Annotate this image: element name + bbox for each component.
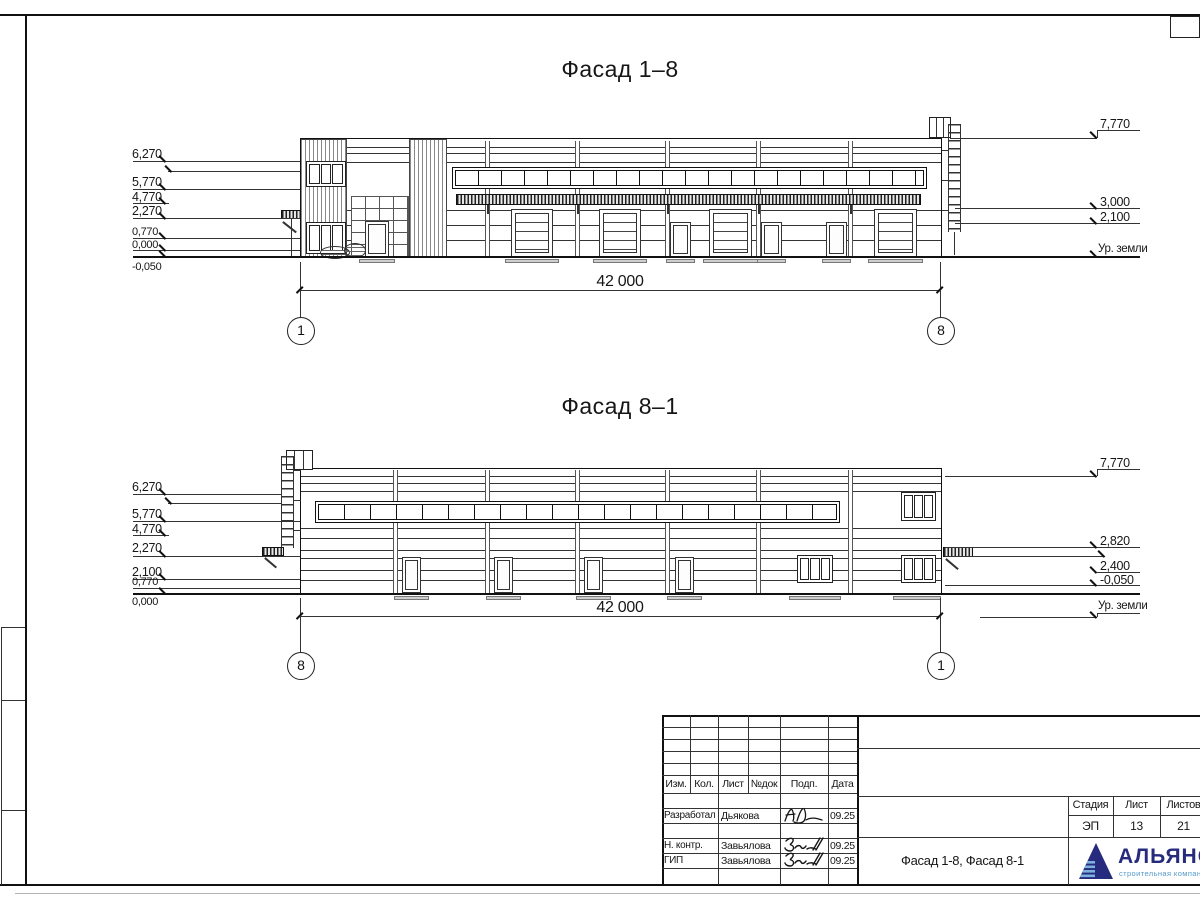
drawing-line [1, 627, 2, 885]
drawing-line [940, 290, 941, 317]
elevation-mark: 2,820 [1100, 534, 1130, 548]
row-name: Дьякова [721, 810, 759, 822]
drawing-line [785, 838, 823, 851]
stage-value: ЭП [1068, 819, 1113, 833]
col-data: Дата [828, 778, 857, 790]
drawing-line [265, 557, 277, 568]
drawing-line [955, 223, 1140, 224]
drawing-line [662, 823, 857, 824]
drawing-line [666, 259, 695, 263]
drawing-line [1097, 613, 1140, 614]
ground-line [278, 256, 988, 258]
drawing-line [168, 171, 300, 172]
drawing-line [133, 161, 300, 162]
drawing-line [893, 596, 941, 600]
drawing-line [857, 748, 1200, 749]
col-list: Лист [718, 778, 748, 790]
drawing-line [133, 494, 281, 495]
doc-title: Фасад 1-8, Фасад 8-1 [859, 853, 1066, 868]
elevation-mark: 2,270 [132, 204, 162, 218]
axis-bubble: 1 [287, 317, 315, 345]
drawing-line [300, 616, 301, 652]
drawing-line [988, 256, 1140, 258]
elevation-mark: 0,770 [132, 226, 158, 238]
drawing-line [300, 290, 301, 317]
drawing-line [294, 470, 301, 471]
signature [783, 851, 827, 869]
drawing-line [133, 218, 300, 219]
drawing-line [1090, 566, 1097, 573]
ground-level-label: Ур. земли [1098, 600, 1147, 612]
stage-label: Стадия [1068, 799, 1113, 811]
drawing-line [662, 751, 857, 752]
drawing-line [294, 530, 301, 531]
elevation-mark: 4,770 [132, 190, 162, 204]
drawing-line [942, 150, 948, 151]
building-outline [300, 138, 942, 258]
drawing-line [789, 596, 841, 600]
drawing-line [662, 868, 857, 869]
col-kol: Кол. [690, 778, 718, 790]
drawing-line [822, 259, 851, 263]
col-podp: Подп. [780, 778, 828, 790]
sheet-number: 13 [1113, 819, 1160, 833]
elevation-mark: 5,770 [132, 175, 162, 189]
drawing-line [505, 259, 559, 263]
building-outline [300, 468, 942, 595]
axis-bubble: 8 [287, 652, 315, 680]
dimension-text: 42 000 [520, 599, 720, 617]
drawing-line [662, 793, 857, 794]
drawing-line [1097, 469, 1140, 470]
elevation-mark: 2,270 [132, 541, 162, 555]
facade-top-title: Фасад 1–8 [420, 56, 820, 83]
drawing-line [486, 596, 521, 600]
drawing-line [283, 221, 297, 233]
drawing-line [1078, 875, 1095, 878]
corner-box [1170, 16, 1200, 38]
frame-top [0, 14, 1200, 16]
elevation-mark: 7,770 [1100, 456, 1130, 470]
ground-line [276, 593, 1012, 595]
company-tagline: строительная компания [1119, 869, 1200, 878]
drawing-line [294, 500, 301, 501]
sheets-label: Листов [1160, 799, 1200, 811]
drawing-line [133, 579, 300, 580]
row-date: 09.25 [830, 855, 855, 867]
drawing-line [757, 259, 786, 263]
drawing-line [394, 596, 429, 600]
col-izm: Изм. [662, 778, 690, 790]
drawing-line [133, 256, 278, 258]
drawing-line [946, 558, 959, 569]
frame-bottom [0, 884, 1200, 886]
drawing-line [942, 180, 948, 181]
signature [783, 804, 825, 824]
drawing-line [662, 853, 857, 854]
drawing-line [1078, 866, 1095, 869]
drawing-line [662, 808, 857, 809]
elevation-mark: 0,000 [132, 596, 158, 608]
col-ndok: №док [748, 778, 780, 790]
drawing-line [168, 503, 281, 504]
elevation-mark: 7,770 [1100, 117, 1130, 131]
elevation-mark: 2,400 [1100, 559, 1130, 573]
sheets-total: 21 [1160, 819, 1200, 833]
drawing-line [1, 627, 25, 628]
row-date: 09.25 [830, 810, 855, 822]
frame-left [25, 14, 27, 885]
drawing-line [593, 259, 647, 263]
drawing-line [945, 585, 1140, 586]
drawing-line [1, 810, 25, 811]
drawing-line [785, 808, 822, 823]
company-logo-icon [1078, 842, 1114, 880]
row-role: Разработал [664, 810, 715, 821]
row-name: Завьялова [721, 840, 771, 852]
drawing-sheet: Фасад 1–8 6,270 5,77 [0, 0, 1200, 900]
drawing-line [1012, 593, 1140, 595]
sheet-label: Лист [1113, 799, 1160, 811]
drawing-line [662, 838, 857, 839]
axis-bubble: 8 [927, 317, 955, 345]
drawing-line [703, 259, 758, 263]
drawing-line [940, 616, 941, 652]
drawing-line [1078, 870, 1095, 873]
drawing-line [1079, 843, 1113, 879]
elevation-mark: 6,270 [132, 480, 162, 494]
elevation-mark: 6,270 [132, 147, 162, 161]
row-role: Н. контр. [664, 840, 703, 851]
drawing-line [857, 837, 1200, 838]
facade-bottom-title: Фасад 8–1 [420, 393, 820, 420]
axis-bubble: 1 [927, 652, 955, 680]
drawing-line [662, 715, 1200, 717]
drawing-line [945, 556, 1105, 557]
drawing-line [718, 715, 719, 885]
drawing-line [943, 118, 944, 137]
drawing-line [980, 617, 1097, 618]
elevation-mark: -0,050 [132, 261, 161, 273]
elevation-mark: 5,770 [132, 507, 162, 521]
drawing-line [950, 138, 1097, 139]
drawing-line [133, 238, 300, 239]
drawing-line [828, 715, 829, 885]
drawing-line [662, 727, 857, 728]
drawing-line [942, 210, 948, 211]
drawing-line [1097, 130, 1140, 131]
drawing-line [294, 451, 295, 469]
drawing-line [945, 547, 1140, 548]
drawing-line [133, 593, 276, 595]
row-name: Завьялова [721, 855, 771, 867]
drawing-line [936, 118, 937, 137]
drawing-line [1078, 861, 1095, 864]
canopy [262, 547, 284, 556]
drawing-line [1068, 815, 1200, 816]
ladder [948, 124, 961, 232]
drawing-line [954, 232, 955, 255]
drawing-line [303, 451, 304, 469]
company-name: АЛЬЯНС [1118, 845, 1200, 869]
drawing-line [359, 259, 395, 263]
drawing-line [1097, 469, 1098, 476]
sheet-edge [15, 893, 1200, 894]
drawing-line [780, 715, 781, 885]
drawing-line [662, 739, 857, 740]
drawing-line [857, 796, 1200, 797]
row-role: ГИП [664, 855, 683, 866]
drawing-line [662, 763, 857, 764]
drawing-line [662, 775, 857, 776]
ladder [281, 456, 294, 548]
drawing-line [868, 259, 923, 263]
elevation-mark: 4,770 [132, 522, 162, 536]
drawing-line [1, 700, 25, 701]
elevation-mark: 3,000 [1100, 195, 1130, 209]
dimension-text: 42 000 [520, 273, 720, 291]
elevation-mark: 2,100 [1100, 210, 1130, 224]
drawing-line [945, 476, 1097, 477]
drawing-line [955, 208, 1140, 209]
row-date: 09.25 [830, 840, 855, 852]
drawing-line [785, 853, 823, 866]
elevation-mark: 0,770 [132, 576, 158, 588]
ground-level-label: Ур. земли [1098, 243, 1147, 255]
drawing-line [133, 556, 300, 557]
